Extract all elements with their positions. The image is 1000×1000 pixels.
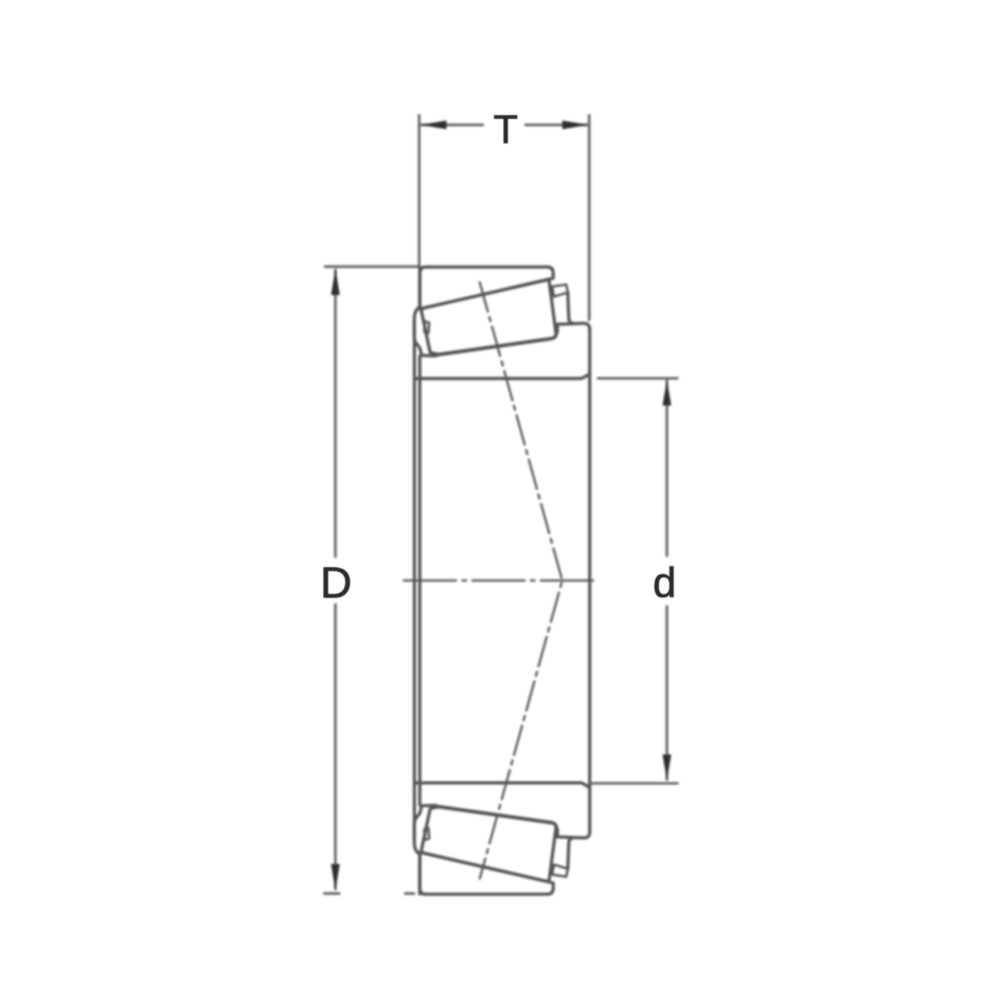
svg-text:T: T xyxy=(493,108,517,152)
svg-text:d: d xyxy=(653,559,676,606)
svg-text:D: D xyxy=(320,559,352,608)
